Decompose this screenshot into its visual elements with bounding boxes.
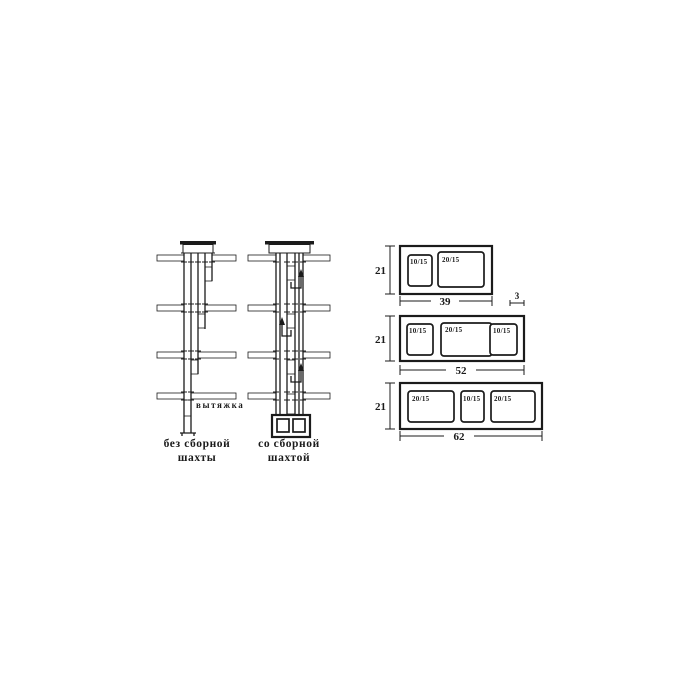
satellite-grille (287, 394, 295, 414)
floor-slab (303, 393, 330, 399)
floor-slab (157, 393, 184, 399)
floor-slab (157, 352, 184, 358)
caption-without-collector-line1: без сборной (164, 438, 231, 450)
opening-size-label: 10/15 (409, 327, 427, 335)
floor-slab (191, 393, 236, 399)
figure-canvas: вытяжка без сборной шахты (0, 0, 700, 700)
floor-slab (212, 255, 236, 261)
floor-slab (303, 255, 330, 261)
width-dimension-line (400, 431, 542, 441)
floor-slabs (248, 255, 330, 399)
height-dimension-line (385, 383, 395, 429)
roof-cap-plate (180, 241, 216, 245)
airflow-arrow (291, 363, 304, 382)
airflow-arrow (279, 317, 291, 336)
collector-shaft-walls (276, 253, 303, 415)
opening-size-label: 10/15 (410, 258, 428, 266)
roof-cap-box (183, 245, 213, 254)
roof-cap-plate (265, 241, 314, 245)
chamber-opening (277, 419, 289, 432)
airflow-arrow (291, 269, 304, 288)
intake-grille (205, 267, 212, 281)
floor-slab (198, 352, 236, 358)
opening-size-label: 20/15 (445, 326, 463, 334)
duct-footing (180, 433, 196, 436)
caption-with-collector-line1: со сборной (258, 438, 320, 450)
satellite-grille (287, 266, 295, 280)
block-section-52: 10/15 20/15 10/15 21 52 (375, 316, 524, 377)
floor-slab (157, 305, 184, 311)
caption-without-collector-line2: шахты (178, 452, 217, 464)
caption-with-collector-line2: шахтой (268, 452, 310, 464)
intake-grille (198, 314, 205, 328)
floor-slab (248, 393, 276, 399)
floor-slab (205, 305, 236, 311)
floor-slabs (157, 255, 236, 399)
intake-grille (191, 360, 198, 374)
floor-slab (157, 255, 184, 261)
floor-slab (248, 352, 276, 358)
thickness-dimension-label: 3 (515, 291, 520, 301)
floor-slab (248, 305, 276, 311)
height-dimension-line (385, 246, 395, 294)
vent-label: вытяжка (196, 400, 244, 410)
exhaust-grille (184, 400, 191, 416)
height-dimension-label: 21 (375, 265, 386, 277)
block-section-62: 20/15 10/15 20/15 21 62 (375, 383, 542, 443)
opening-size-label: 20/15 (412, 395, 430, 403)
opening-size-label: 10/15 (493, 327, 511, 335)
opening-size-label: 20/15 (494, 395, 512, 403)
chamber-opening (293, 419, 305, 432)
width-dimension-label: 39 (440, 296, 452, 308)
height-dimension-line (385, 316, 395, 361)
floor-slab (303, 305, 330, 311)
floor-slab (303, 352, 330, 358)
satellite-grille (287, 314, 295, 328)
shaft-diagram-without-collector: вытяжка без сборной шахты (157, 241, 244, 464)
height-dimension-label: 21 (375, 334, 386, 346)
shaft-diagram-with-collector: со сборной шахтой (248, 241, 330, 464)
figure-ventilation-blocks: вытяжка без сборной шахты (0, 0, 700, 700)
opening-size-label: 20/15 (442, 256, 460, 264)
satellite-grille (287, 360, 295, 374)
block-section-39: 10/15 20/15 21 39 3 (375, 246, 524, 308)
width-dimension-label: 52 (456, 365, 468, 377)
floor-slab (248, 255, 276, 261)
roof-cap-box (269, 245, 310, 254)
width-dimension-label: 62 (454, 431, 466, 443)
height-dimension-label: 21 (375, 401, 386, 413)
opening-size-label: 10/15 (463, 395, 481, 403)
